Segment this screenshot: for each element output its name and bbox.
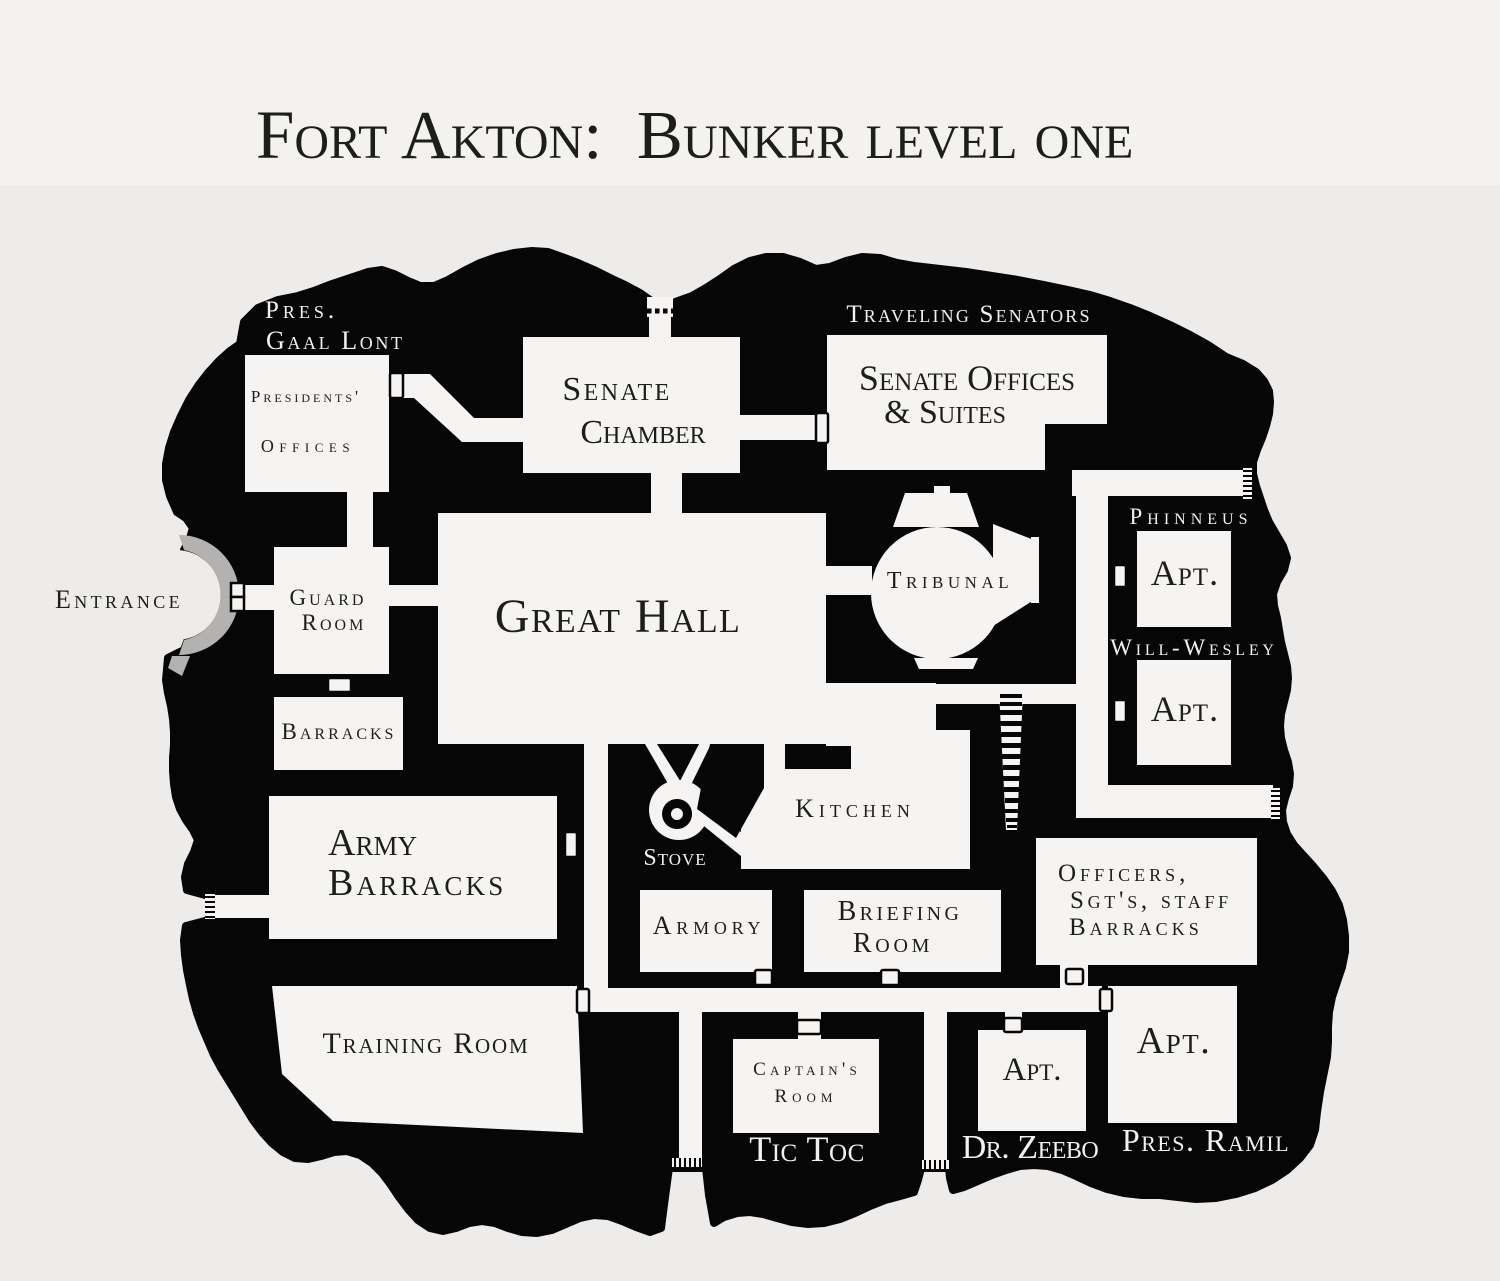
svg-text:Room: Room bbox=[853, 928, 933, 959]
svg-text:Kitchen: Kitchen bbox=[795, 794, 915, 823]
svg-text:Pres.: Pres. bbox=[265, 297, 338, 324]
svg-text:Armory: Armory bbox=[653, 911, 766, 940]
svg-text:Stove: Stove bbox=[643, 845, 706, 871]
svg-text:Will-Wesley: Will-Wesley bbox=[1110, 635, 1278, 660]
svg-text:Dr. Zeebo: Dr. Zeebo bbox=[962, 1129, 1099, 1166]
svg-text:Apt.: Apt. bbox=[1151, 689, 1219, 729]
svg-text:Officers,: Officers, bbox=[1058, 860, 1189, 887]
svg-text:Apt.: Apt. bbox=[1137, 1020, 1211, 1062]
svg-text:Barracks: Barracks bbox=[1069, 914, 1203, 941]
svg-text:Army: Army bbox=[328, 822, 417, 864]
svg-text:Captain's: Captain's bbox=[753, 1059, 861, 1080]
svg-text:Chamber: Chamber bbox=[580, 414, 705, 451]
svg-text:& Suites: & Suites bbox=[884, 394, 1006, 431]
svg-text:Entrance: Entrance bbox=[55, 585, 183, 614]
svg-text:Sgt's, staff: Sgt's, staff bbox=[1070, 887, 1232, 914]
svg-text:Great Hall: Great Hall bbox=[495, 590, 741, 643]
svg-text:Apt.: Apt. bbox=[1003, 1052, 1062, 1088]
svg-text:Barracks: Barracks bbox=[282, 719, 397, 744]
svg-text:Room: Room bbox=[774, 1086, 837, 1107]
svg-text:Tic Toc: Tic Toc bbox=[749, 1129, 865, 1169]
svg-text:Senate: Senate bbox=[562, 371, 671, 408]
svg-text:Room: Room bbox=[302, 610, 367, 635]
svg-text:Phinneus: Phinneus bbox=[1129, 504, 1252, 529]
svg-text:Pres. Ramil: Pres. Ramil bbox=[1122, 1122, 1290, 1158]
svg-text:Gaal Lont: Gaal Lont bbox=[266, 326, 405, 355]
svg-text:Senate Offices: Senate Offices bbox=[859, 358, 1075, 398]
svg-text:Briefing: Briefing bbox=[838, 896, 963, 927]
svg-text:Presidents': Presidents' bbox=[251, 387, 361, 406]
svg-text:Guard: Guard bbox=[290, 585, 367, 610]
svg-text:Tribunal: Tribunal bbox=[887, 568, 1013, 594]
svg-text:Traveling Senators: Traveling Senators bbox=[846, 301, 1091, 328]
svg-text:Apt.: Apt. bbox=[1151, 553, 1219, 593]
svg-text:Offices: Offices bbox=[261, 436, 355, 456]
svg-text:Barracks: Barracks bbox=[328, 862, 506, 904]
svg-text:Fort Akton: Bunker level one: Fort Akton: Bunker level one bbox=[256, 97, 1133, 173]
svg-text:Training Room: Training Room bbox=[323, 1027, 530, 1060]
